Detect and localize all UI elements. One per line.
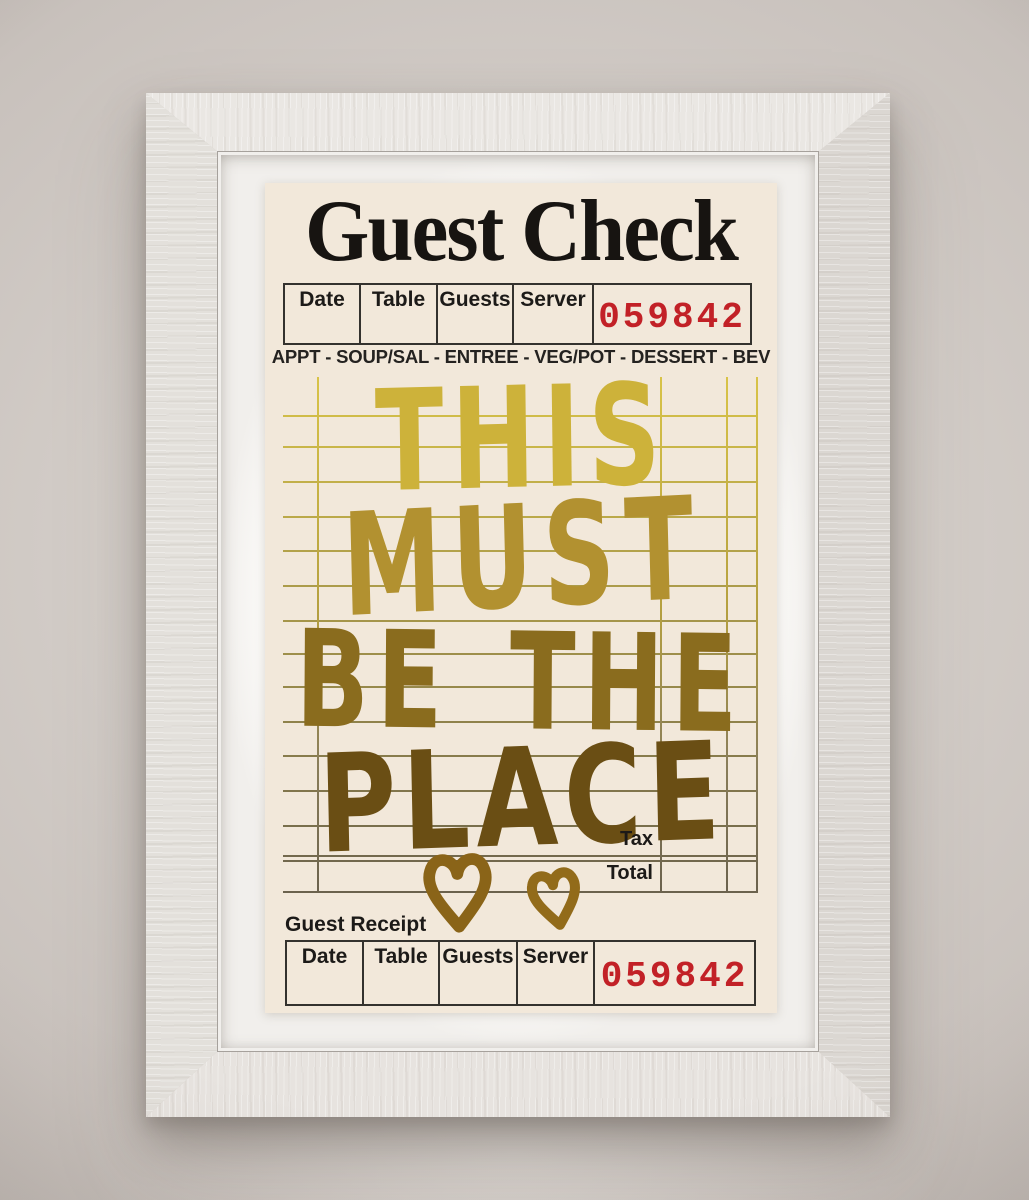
total-label: Total [607, 862, 653, 885]
frame-opening: Guest Check Date Table Guests Server 059… [218, 152, 818, 1051]
wall: Guest Check Date Table Guests Server 059… [0, 0, 1029, 1200]
guest-check-poster: Guest Check Date Table Guests Server 059… [265, 183, 777, 1013]
grid-line-horizontal [283, 891, 758, 893]
receipt-cell-guests: Guests [440, 942, 518, 1004]
guest-receipt-label: Guest Receipt [285, 913, 426, 937]
frame-right-rail [818, 93, 890, 1117]
mat-board: Guest Check Date Table Guests Server 059… [221, 155, 815, 1048]
header-cell-table: Table [361, 285, 438, 343]
frame-left-rail [146, 93, 218, 1117]
frame-top-rail [146, 93, 890, 152]
header-cell-date: Date [285, 285, 361, 343]
picture-frame: Guest Check Date Table Guests Server 059… [146, 93, 890, 1117]
frame-bottom-rail [146, 1051, 890, 1117]
heart-icon [419, 848, 496, 939]
quote-line-4: PLACE [265, 722, 780, 875]
check-number: 059842 [594, 285, 750, 343]
poster-title: Guest Check [280, 188, 761, 276]
receipt-check-number: 059842 [595, 942, 754, 1004]
check-header-table: Date Table Guests Server 059842 [283, 283, 752, 345]
header-cell-guests: Guests [438, 285, 514, 343]
tax-label: Tax [620, 828, 653, 851]
heart-icon [522, 862, 590, 938]
receipt-cell-table: Table [364, 942, 440, 1004]
header-cell-server: Server [514, 285, 594, 343]
receipt-cell-date: Date [287, 942, 364, 1004]
receipt-table: Date Table Guests Server 059842 [285, 940, 756, 1006]
receipt-cell-server: Server [518, 942, 595, 1004]
